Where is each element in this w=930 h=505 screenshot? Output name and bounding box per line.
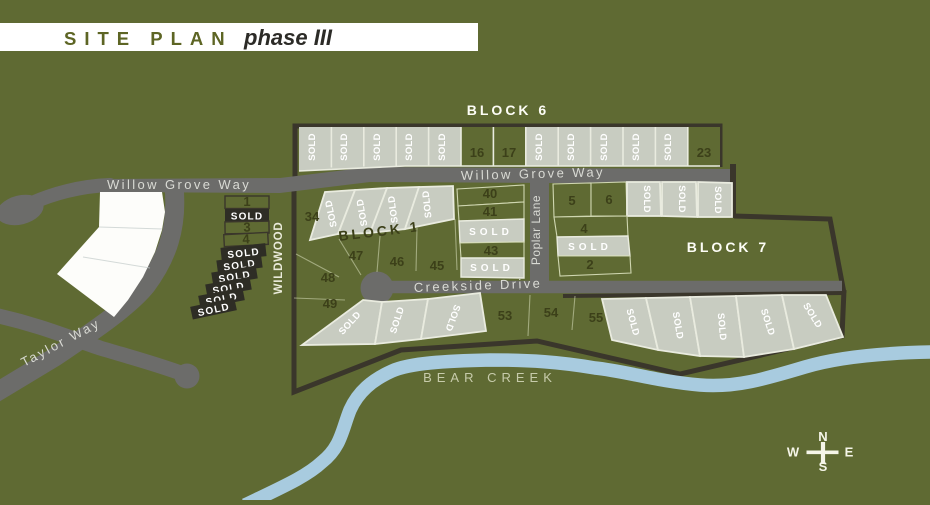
svg-text:WILDWOOD: WILDWOOD: [273, 222, 285, 295]
svg-text:23: 23: [697, 145, 711, 160]
svg-text:SOLD: SOLD: [372, 133, 383, 161]
svg-text:N: N: [818, 429, 827, 444]
svg-text:E: E: [845, 445, 854, 460]
svg-text:6: 6: [605, 192, 612, 207]
svg-text:SOLD: SOLD: [469, 227, 513, 238]
svg-text:17: 17: [502, 145, 516, 160]
svg-text:47: 47: [349, 248, 363, 263]
svg-text:2: 2: [586, 257, 593, 272]
svg-text:BEAR CREEK: BEAR CREEK: [423, 370, 557, 385]
svg-text:SOLD: SOLD: [404, 133, 415, 161]
svg-text:Poplar Lane: Poplar Lane: [529, 195, 543, 265]
svg-text:40: 40: [483, 186, 497, 201]
svg-text:55: 55: [589, 310, 603, 325]
svg-text:45: 45: [430, 258, 444, 273]
svg-text:1: 1: [243, 194, 250, 209]
svg-text:16: 16: [470, 145, 484, 160]
svg-text:SOLD: SOLD: [566, 133, 577, 161]
svg-text:5: 5: [568, 193, 575, 208]
svg-text:SOLD: SOLD: [470, 263, 514, 274]
svg-text:SOLD: SOLD: [712, 186, 723, 214]
svg-text:SOLD: SOLD: [307, 133, 318, 161]
svg-text:SOLD: SOLD: [663, 133, 674, 161]
svg-text:46: 46: [390, 254, 404, 269]
svg-text:41: 41: [483, 204, 497, 219]
svg-text:SOLD: SOLD: [339, 133, 350, 161]
svg-text:SOLD: SOLD: [437, 133, 448, 161]
svg-text:49: 49: [323, 296, 337, 311]
svg-text:SOLD: SOLD: [534, 133, 545, 161]
svg-text:43: 43: [484, 243, 498, 258]
svg-text:SOLD: SOLD: [641, 185, 652, 213]
svg-text:48: 48: [321, 270, 335, 285]
svg-text:34: 34: [305, 209, 320, 224]
svg-text:SOLD: SOLD: [631, 133, 642, 161]
svg-text:BLOCK 6: BLOCK 6: [467, 102, 549, 118]
svg-text:W: W: [787, 445, 800, 460]
svg-text:53: 53: [498, 308, 512, 323]
svg-text:SOLD: SOLD: [568, 242, 612, 253]
svg-text:SITE PLAN: SITE PLAN: [64, 28, 233, 49]
svg-text:SOLD: SOLD: [676, 185, 687, 213]
svg-text:phase III: phase III: [243, 25, 333, 50]
svg-text:Willow Grove Way: Willow Grove Way: [107, 177, 251, 192]
svg-text:S: S: [819, 459, 828, 474]
svg-text:BLOCK 7: BLOCK 7: [687, 239, 769, 255]
svg-text:SOLD: SOLD: [599, 133, 610, 161]
svg-text:4: 4: [580, 221, 588, 236]
svg-text:54: 54: [544, 305, 559, 320]
